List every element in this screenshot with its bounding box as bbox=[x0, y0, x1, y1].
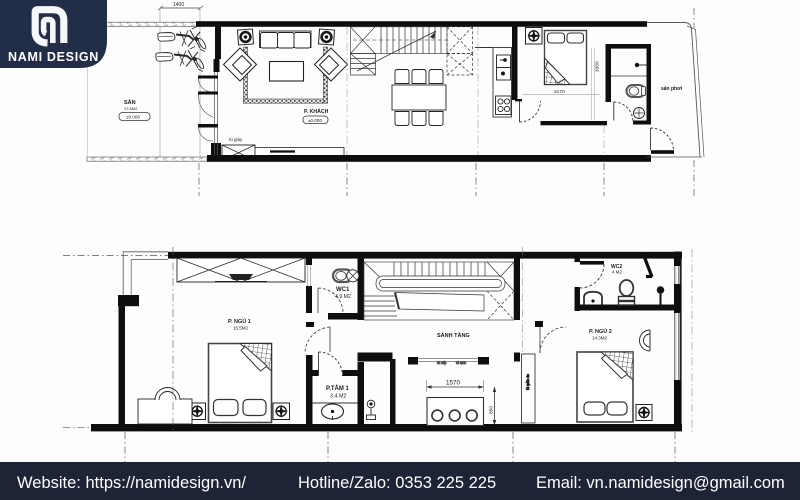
svg-text:P. KHÁCH: P. KHÁCH bbox=[304, 108, 329, 115]
svg-text:±0.000: ±0.000 bbox=[308, 118, 322, 123]
svg-text:sân phơi: sân phơi bbox=[661, 86, 683, 92]
svg-text:tủ quần áo: tủ quần áo bbox=[526, 374, 530, 390]
svg-text:3.4 M2: 3.4 M2 bbox=[330, 394, 346, 400]
svg-text:1570: 1570 bbox=[446, 380, 461, 387]
svg-text:14.3M2: 14.3M2 bbox=[592, 336, 608, 341]
svg-text:SÂN: SÂN bbox=[124, 99, 136, 106]
svg-text:850: 850 bbox=[489, 406, 495, 414]
svg-text:P. NGỦ 2: P. NGỦ 2 bbox=[589, 328, 612, 335]
svg-text:1400: 1400 bbox=[173, 2, 184, 8]
svg-text:3170: 3170 bbox=[554, 89, 565, 95]
svg-text:±0.000: ±0.000 bbox=[126, 115, 140, 120]
svg-text:P.TẮM 1: P.TẮM 1 bbox=[326, 384, 350, 392]
svg-text:17.6M2: 17.6M2 bbox=[124, 106, 138, 111]
svg-text:3350: 3350 bbox=[595, 61, 601, 72]
svg-text:NAMI DESIGN: NAMI DESIGN bbox=[8, 50, 99, 64]
svg-text:15.5M2: 15.5M2 bbox=[233, 326, 249, 331]
svg-text:P. NGỦ 1: P. NGỦ 1 bbox=[228, 318, 251, 325]
svg-text:tủ quần áo: tủ quần áo bbox=[517, 290, 521, 306]
svg-text:tủ giày: tủ giày bbox=[229, 136, 243, 142]
svg-text:tủ lạnh: tủ lạnh bbox=[456, 361, 466, 365]
svg-text:WC1: WC1 bbox=[336, 287, 350, 293]
svg-text:SẢNH TẦNG: SẢNH TẦNG bbox=[437, 332, 470, 339]
svg-text:4 M2: 4 M2 bbox=[612, 270, 622, 275]
svg-text:tủ bếp: tủ bếp bbox=[437, 361, 447, 365]
